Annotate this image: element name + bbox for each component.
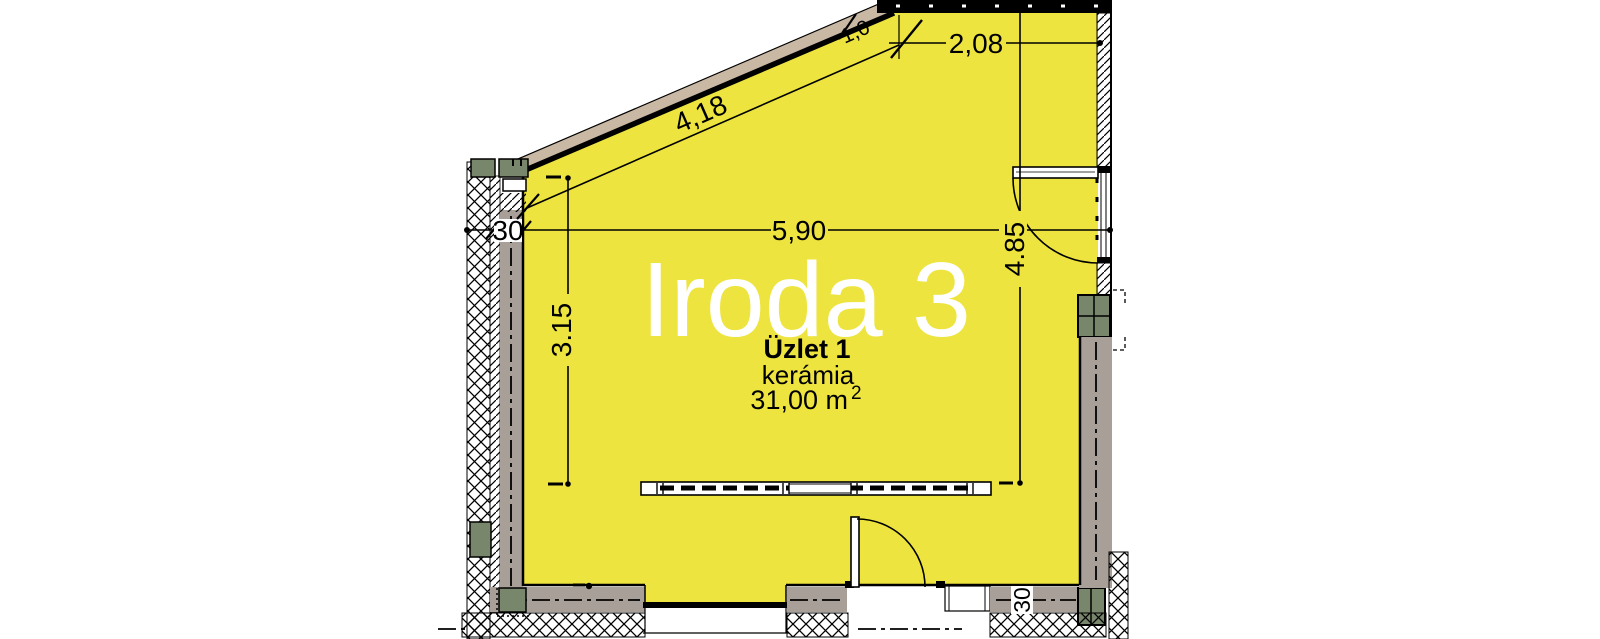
window-frame-lines-1 [643,608,789,633]
bottom-door-leaf [851,517,859,587]
right-door-sill-jamb [1097,257,1111,263]
right-wall-hatch-top [1097,13,1111,167]
foundation-hatch-right [990,613,1106,637]
door-jamb-right [936,581,945,588]
right-wall-hatch-mid [1097,263,1111,295]
left-wall-lintel-block-1 [471,159,495,177]
unit-area-value: 31,00 m [750,385,848,415]
right-door-leaf [1013,167,1098,178]
partition-solid-panel [789,484,851,493]
dim-dot [464,227,470,233]
right-foundation-hatch [1109,552,1128,639]
column-dashed-bracket-bottom [1113,337,1125,350]
right-door-head-jamb [1097,166,1111,173]
foundation-hatch-left [462,613,645,637]
floor-plan-canvas: 30 5,90 3.15 4.85 2,08 4,18 [0,0,1600,639]
dim-bottom-wall-thickness-label: 30 [1009,587,1035,613]
dim-room-depth-right-label: 4.85 [999,222,1030,277]
dim-dot [565,481,571,487]
unit-area-exponent: 2 [851,383,862,404]
window-sill-line [643,602,789,608]
right-door-frame-lines [1101,173,1106,257]
foundation-hatch-mid [787,613,848,637]
dim-dot [586,583,592,589]
unit-area-label: 31,00 m2 [750,383,861,415]
dim-dot [1107,227,1113,233]
dim-depth-left-label-group: 3.15 [546,294,577,366]
dim-bottom-wall-label-group: 30 [1009,586,1035,614]
top-exterior-wall [877,0,1112,13]
bottom-left-corner-block [499,588,526,612]
left-wall-top-box [503,179,526,191]
left-wall-outer-block [470,522,491,557]
dim-dot [565,175,571,181]
dim-depth-right-label-group: 4.85 [999,211,1030,287]
bottom-window-opening-2 [945,586,990,611]
glazed-partition [641,482,991,495]
dim-dot [1017,480,1023,486]
dim-room-depth-left-label: 3.15 [546,303,577,358]
column-dashed-bracket-top [1113,290,1125,303]
top-wall-band [877,0,1112,13]
window-bay-floor [645,585,786,603]
dim-top-segment-label: 2,08 [949,28,1004,59]
left-wall-insulation-hatch [467,162,490,639]
dim-left-wall-thickness-label: 30 [492,215,523,246]
floor-plan-page: 30 5,90 3.15 4.85 2,08 4,18 [0,0,1600,639]
dim-dot [1097,40,1103,46]
left-wall-corner-hatch [500,193,526,212]
